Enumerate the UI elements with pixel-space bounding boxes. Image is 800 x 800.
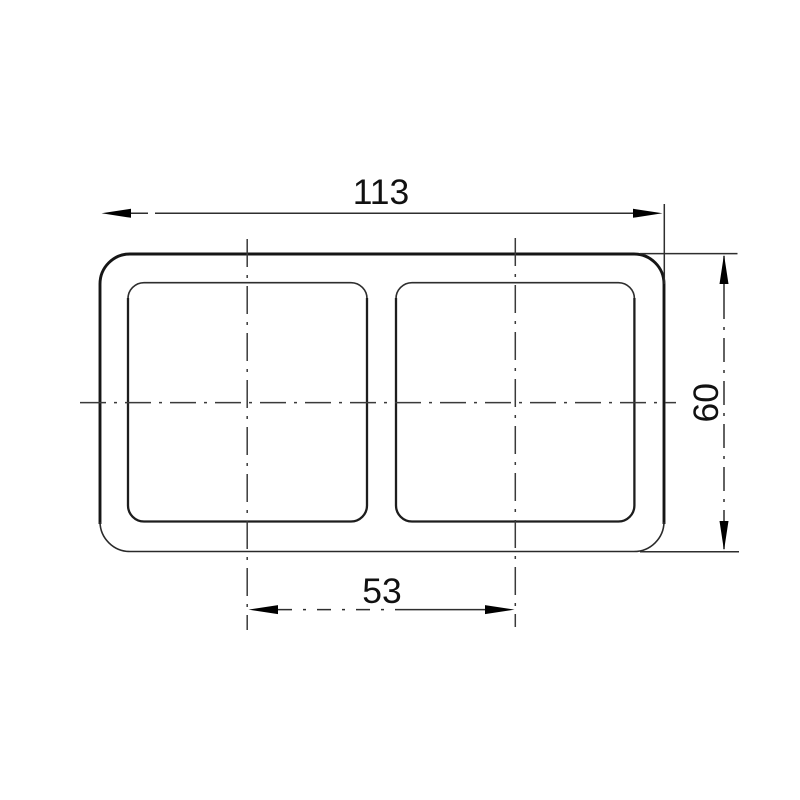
svg-text:113: 113 (353, 172, 410, 212)
svg-text:53: 53 (362, 571, 402, 611)
svg-text:60: 60 (686, 383, 726, 423)
